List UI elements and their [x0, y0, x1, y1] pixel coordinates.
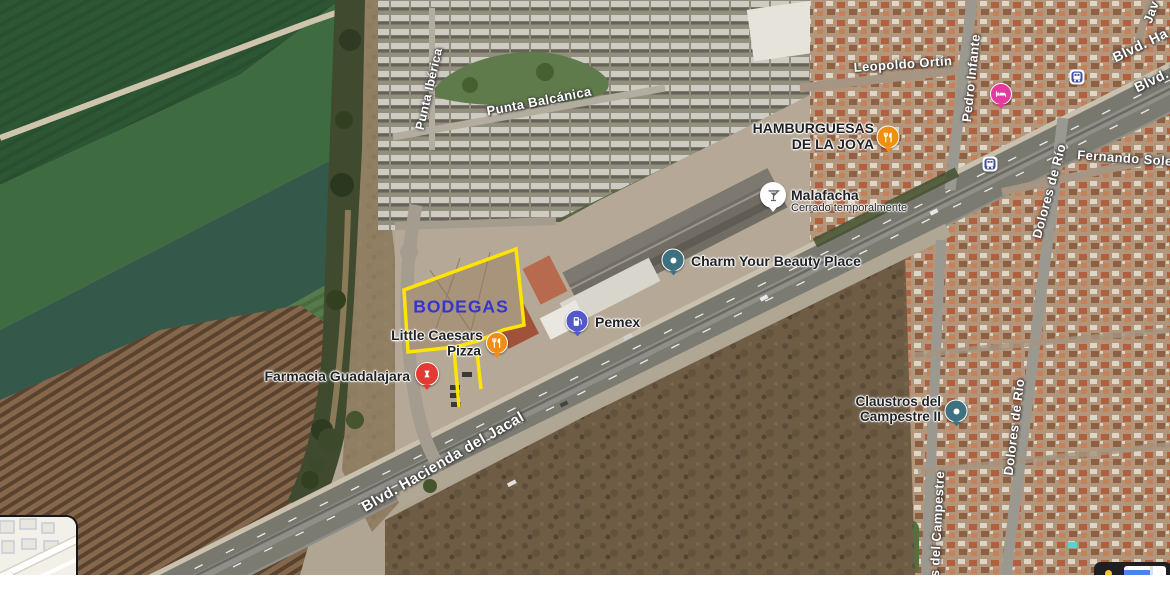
maps-app-window: Punta Ibérica Punta Balcánica Leopoldo O… [0, 0, 1170, 600]
hotel-bed-icon [995, 88, 1007, 100]
poi-label-hamburguesas[interactable]: HAMBURGUESAS DE LA JOYA [753, 121, 874, 152]
poi-pin-little-caesars[interactable] [486, 332, 508, 354]
pegman-icon[interactable] [1105, 570, 1112, 576]
poi-label-malafacha[interactable]: Malafacha [791, 187, 859, 203]
poi-pin-hamburguesas[interactable] [877, 126, 900, 149]
poi-pin-malafacha[interactable] [760, 182, 786, 208]
minimap-roadmap [0, 517, 76, 575]
poi-label-line: Campestre II [855, 410, 941, 425]
cocktail-icon [767, 189, 780, 202]
pharmacy-icon [421, 368, 433, 380]
map-type-thumbnail[interactable] [1124, 566, 1166, 575]
satellite-map-canvas[interactable]: Punta Ibérica Punta Balcánica Leopoldo O… [0, 0, 1170, 575]
poi-label-line: Claustros del [855, 395, 941, 410]
poi-pin-hotel[interactable] [990, 83, 1012, 105]
gas-pump-icon [571, 315, 583, 327]
map-thumbnail-road [1150, 566, 1153, 575]
transit-stop-icon-1[interactable] [1070, 70, 1085, 85]
poi-label-line: DE LA JOYA [753, 137, 874, 153]
poi-pin-farmacia-guadalajara[interactable] [415, 362, 439, 386]
poi-label-little-caesars-pizza: Pizza [447, 344, 481, 359]
map-thumbnail-graphic [1124, 570, 1150, 575]
transit-stop-icon-2[interactable] [983, 157, 998, 172]
poi-pin-claustros[interactable] [945, 400, 968, 423]
restaurant-icon [491, 337, 503, 349]
restaurant-icon [882, 131, 894, 143]
poi-status-malafacha: Cerrado temporalmente [791, 202, 907, 214]
poi-pin-charm-your-beauty-place[interactable] [662, 249, 685, 272]
property-label-bodegas: BODEGAS [413, 297, 508, 318]
poi-label-claustros[interactable]: Claustros del Campestre II [855, 395, 941, 424]
poi-label-farmacia-guadalajara[interactable]: Farmacia Guadalajara [264, 368, 410, 384]
generic-place-icon [667, 254, 679, 266]
poi-label-line: HAMBURGUESAS [753, 121, 874, 137]
poi-label-little-caesars[interactable]: Little Caesars [391, 327, 483, 343]
poi-label-charm-your-beauty-place[interactable]: Charm Your Beauty Place [691, 253, 861, 269]
poi-label-pemex[interactable]: Pemex [595, 314, 640, 330]
generic-place-icon [950, 405, 962, 417]
bus-icon [1072, 72, 1083, 83]
poi-pin-pemex[interactable] [566, 310, 589, 333]
bus-icon [985, 159, 996, 170]
map-controls-bar[interactable] [1094, 562, 1170, 575]
bottom-white-strip [0, 575, 1170, 600]
minimap-inset[interactable] [0, 515, 78, 575]
